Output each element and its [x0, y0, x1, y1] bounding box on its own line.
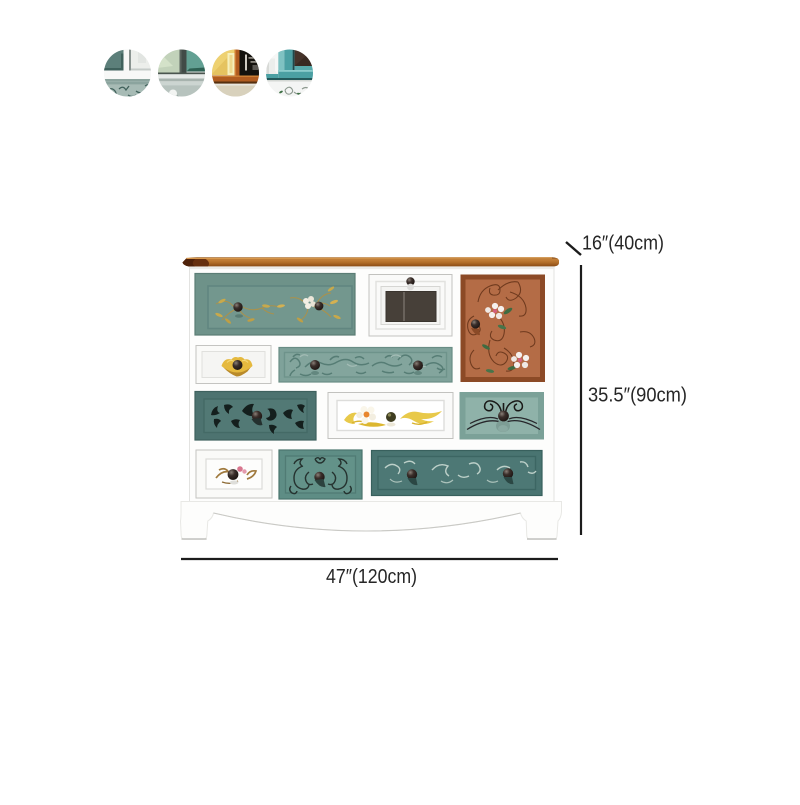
- svg-text:47″(120cm): 47″(120cm): [326, 565, 417, 588]
- svg-text:16″(40cm): 16″(40cm): [582, 232, 664, 255]
- svg-text:35.5″(90cm): 35.5″(90cm): [588, 384, 687, 407]
